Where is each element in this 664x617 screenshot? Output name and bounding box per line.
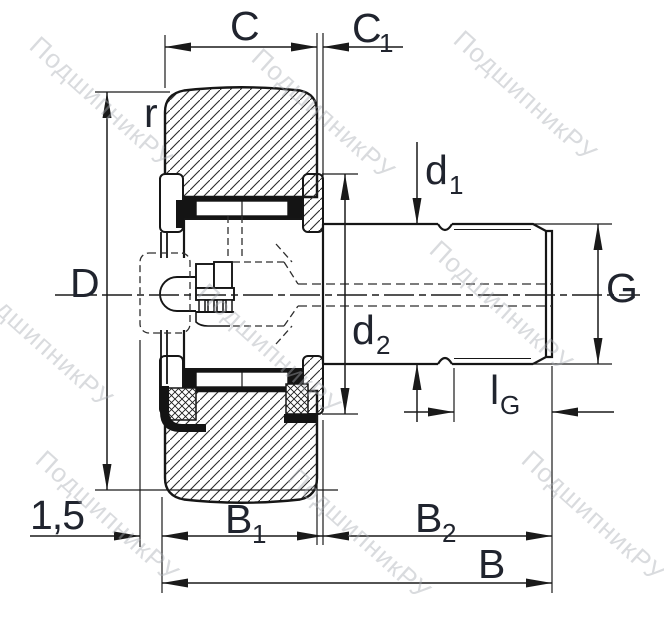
contact-seal-lower-right-hatch: [286, 384, 308, 414]
label-d2-sub: 2: [376, 330, 390, 360]
watermark-text: ПодшипникРУ: [516, 444, 664, 588]
contact-seal-lower-left-hatch: [168, 388, 196, 420]
label-G: G: [606, 265, 637, 311]
outer-ring-upper: [165, 87, 317, 197]
label-D: D: [70, 260, 99, 306]
label-B: B: [478, 541, 504, 587]
label-d1-sub: 1: [449, 170, 463, 200]
label-r: r: [144, 90, 157, 136]
label-C1-sub: 1: [379, 28, 393, 58]
thread-root-lines: [454, 230, 531, 359]
label-chamfer: 1,5: [30, 492, 84, 538]
watermark-text: ПодшипникРУ: [448, 24, 603, 168]
grease-nipple: [160, 262, 234, 326]
label-d1-base: d: [425, 147, 447, 193]
seal-step-lower-right: [296, 376, 303, 384]
label-C1-base: C: [352, 5, 381, 51]
seal-lip-lower-right: [284, 414, 316, 423]
label-B1-base: B: [225, 496, 251, 542]
label-B2-sub: 2: [442, 518, 456, 548]
bearing-drawing: C C 1 r D d 1 d 2 G l G B 1 B 2 B 1,5 По…: [0, 0, 664, 617]
label-B1-sub: 1: [252, 519, 266, 549]
drawing-canvas: C C 1 r D d 1 d 2 G l G B 1 B 2 B 1,5 По…: [0, 0, 664, 617]
label-lG-base: l: [490, 367, 498, 413]
label-C: C: [230, 3, 259, 49]
watermarks: ПодшипникРУ ПодшипникРУ ПодшипникРУ Подш…: [0, 24, 664, 606]
watermark-text: ПодшипникРУ: [0, 270, 119, 414]
label-d2-base: d: [352, 307, 374, 353]
label-B2-base: B: [415, 495, 441, 541]
end-plate-upper: [161, 232, 167, 258]
washer-upper-right: [303, 174, 323, 232]
label-lG-sub: G: [500, 390, 520, 420]
